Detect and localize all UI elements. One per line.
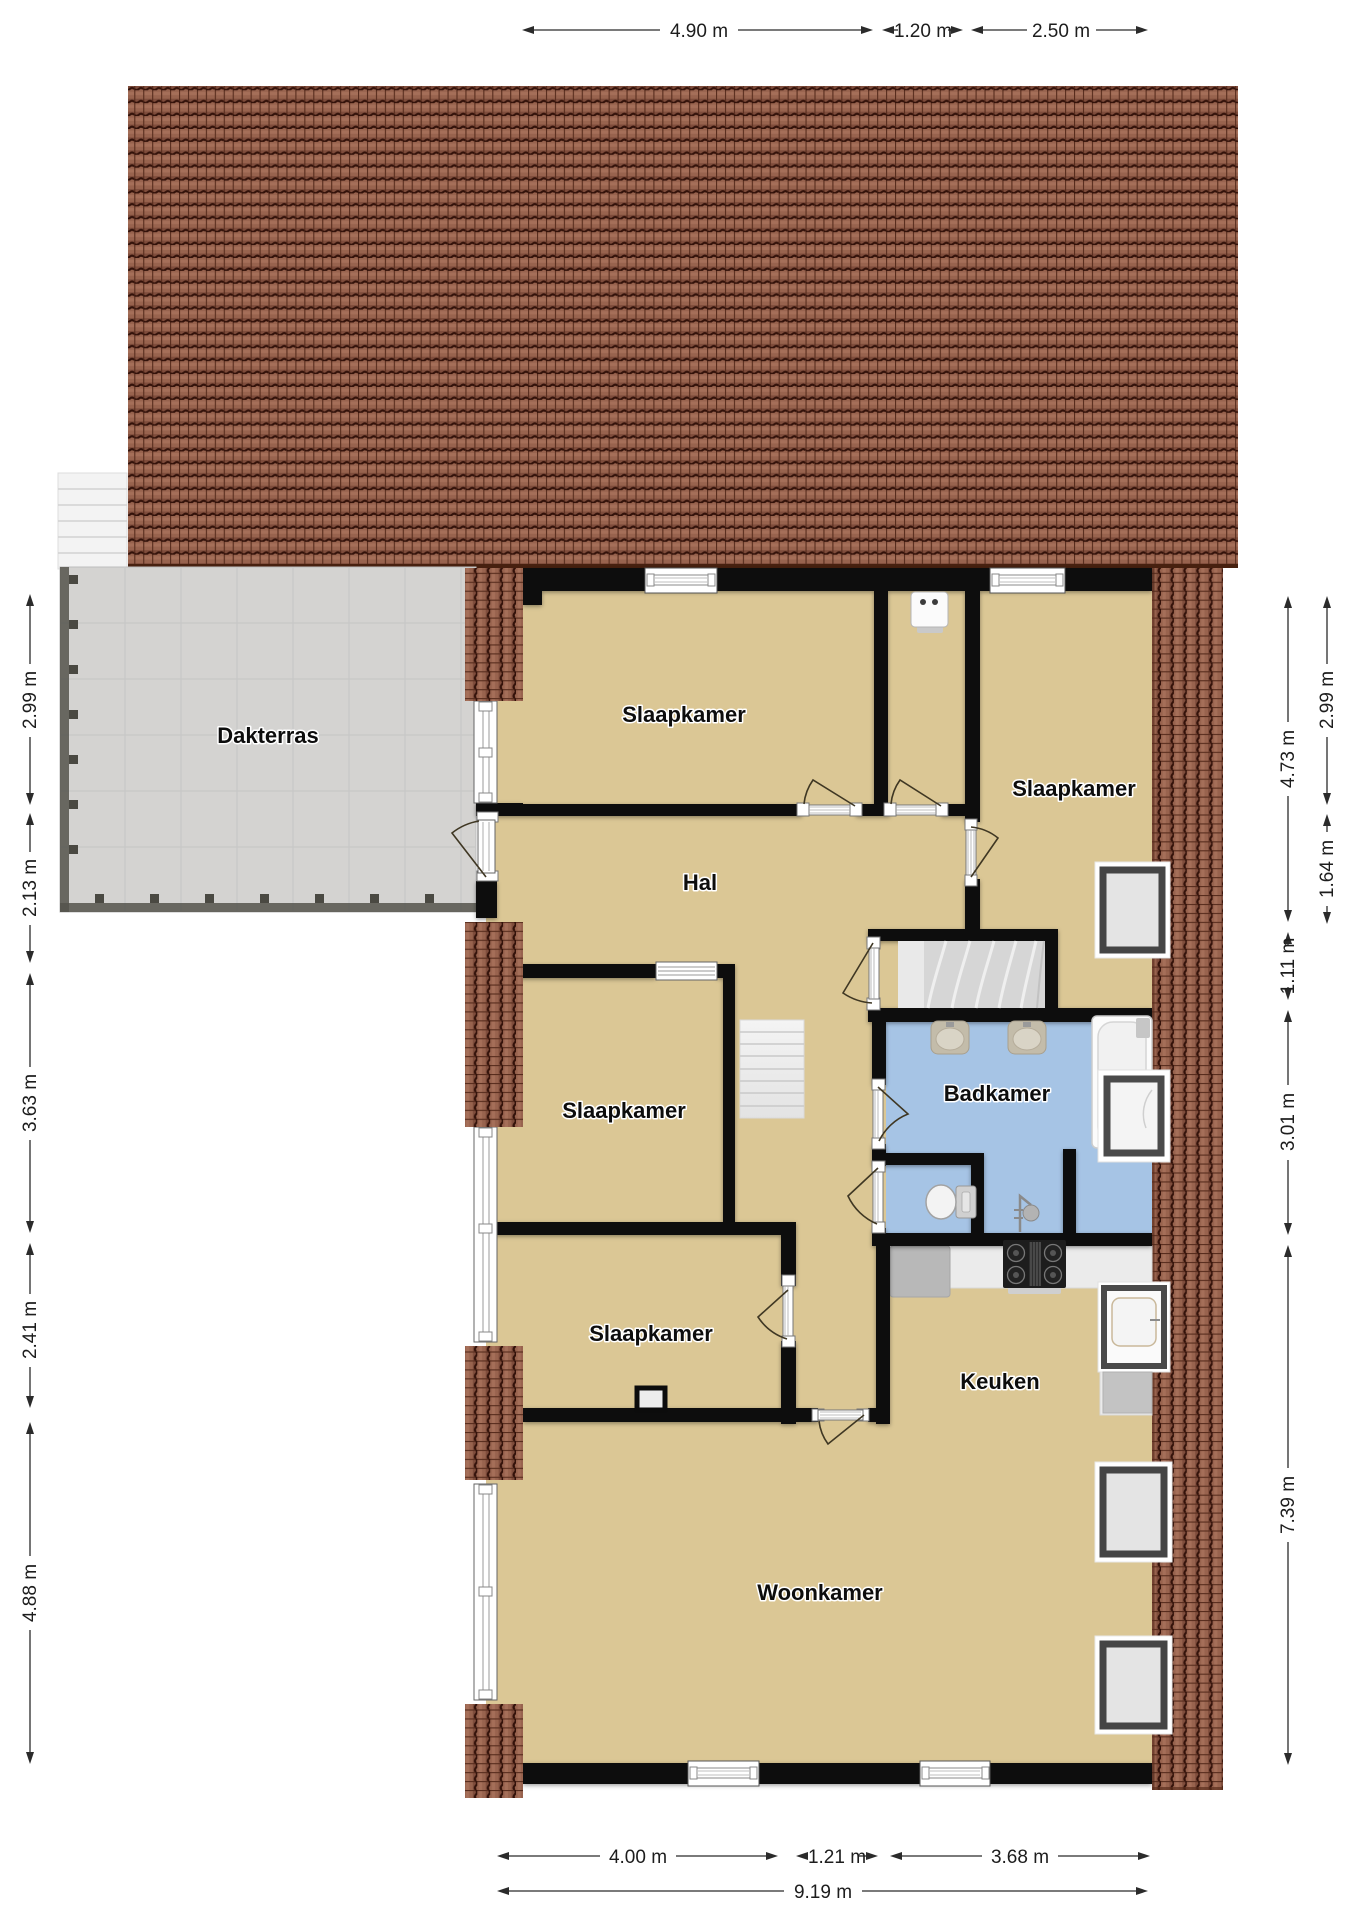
svg-text:4.88 m: 4.88 m <box>20 1564 41 1622</box>
svg-text:Hal: Hal <box>683 870 717 895</box>
svg-text:2.50 m: 2.50 m <box>1032 21 1090 42</box>
svg-text:3.63 m: 3.63 m <box>20 1074 41 1132</box>
svg-text:2.41 m: 2.41 m <box>20 1301 41 1359</box>
svg-text:Slaapkamer: Slaapkamer <box>589 1321 713 1346</box>
svg-text:1.11 m: 1.11 m <box>1278 938 1299 995</box>
svg-text:Slaapkamer: Slaapkamer <box>562 1098 686 1123</box>
svg-text:2.99 m: 2.99 m <box>1317 671 1338 729</box>
svg-text:4.00 m: 4.00 m <box>609 1847 667 1868</box>
svg-text:2.99 m: 2.99 m <box>20 671 41 729</box>
svg-text:Keuken: Keuken <box>960 1369 1039 1394</box>
svg-text:1.20 m: 1.20 m <box>894 21 952 42</box>
svg-text:4.73 m: 4.73 m <box>1278 730 1299 788</box>
svg-text:Dakterras: Dakterras <box>217 723 319 748</box>
svg-text:Badkamer: Badkamer <box>944 1081 1051 1106</box>
svg-text:2.13 m: 2.13 m <box>20 859 41 917</box>
svg-text:Woonkamer: Woonkamer <box>757 1580 883 1605</box>
svg-text:9.19 m: 9.19 m <box>794 1882 852 1903</box>
svg-text:Slaapkamer: Slaapkamer <box>622 702 746 727</box>
svg-text:1.21 m: 1.21 m <box>808 1847 866 1868</box>
svg-text:3.68 m: 3.68 m <box>991 1847 1049 1868</box>
svg-text:4.90 m: 4.90 m <box>670 21 728 42</box>
svg-text:1.64 m: 1.64 m <box>1317 840 1338 898</box>
svg-text:7.39 m: 7.39 m <box>1278 1476 1299 1534</box>
svg-text:Slaapkamer: Slaapkamer <box>1012 776 1136 801</box>
svg-text:3.01 m: 3.01 m <box>1278 1093 1299 1151</box>
